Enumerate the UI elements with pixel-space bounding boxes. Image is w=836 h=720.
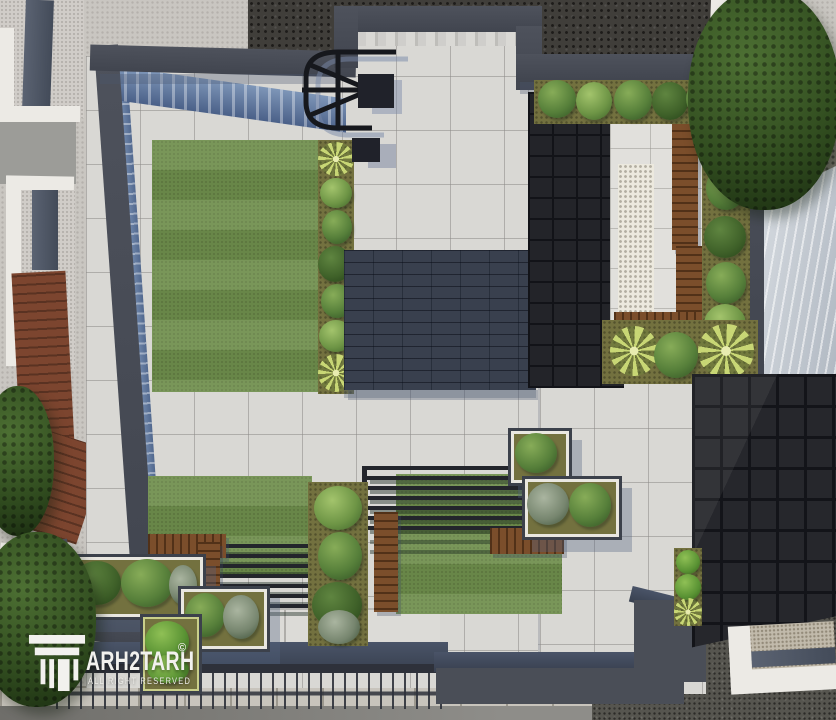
tree-canopy: [688, 0, 836, 210]
shrub: [314, 486, 362, 530]
stair-railing: [300, 46, 410, 146]
site-plan-render: ARH2TARH © ALL RIGHT RESERVED: [0, 0, 836, 720]
walkway-planting-pocket: [674, 548, 702, 626]
palm-plant: [318, 142, 354, 176]
pebble-strip: [618, 164, 654, 318]
neighbor-roof-inset: [32, 190, 58, 270]
palm-plant: [674, 598, 702, 626]
neighbor-building-bottom-right: [723, 613, 836, 720]
shrub: [576, 82, 612, 120]
roof-shadow: [348, 390, 538, 400]
shrub: [676, 550, 700, 574]
terrace-wall-top: [334, 6, 542, 32]
shrub: [704, 216, 746, 258]
shrub: [121, 559, 173, 607]
watermark-tagline: ALL RIGHT RESERVED: [88, 676, 191, 687]
shrub: [675, 574, 701, 600]
neighbor-parapet: [730, 665, 836, 695]
stair-railing-icon: [300, 46, 410, 146]
palm-plant: [610, 326, 658, 376]
shrub: [569, 483, 611, 527]
shrub: [320, 178, 352, 208]
shrub: [515, 433, 557, 473]
planting-strip-middle: [308, 482, 368, 646]
neighbor-parapet: [0, 106, 80, 122]
shrub: [652, 82, 688, 120]
shrub: [322, 210, 352, 244]
watermark: ARH2TARH © ALL RIGHT RESERVED: [28, 630, 468, 700]
neighbor-roof-inset: [22, 0, 54, 110]
shrub: [614, 80, 652, 120]
watermark-copyright: ©: [178, 642, 186, 654]
shrub: [654, 332, 698, 378]
l-shaped-planter-center: [522, 476, 622, 540]
shrub: [527, 483, 569, 525]
shrub: [706, 262, 746, 304]
wooden-bench: [374, 512, 398, 612]
central-shingle-roof: [344, 250, 536, 390]
column-logo-icon: [28, 634, 86, 692]
terrace-seat: [352, 138, 380, 162]
shrub: [318, 532, 362, 580]
shrub: [538, 80, 576, 118]
palm-plant: [698, 324, 754, 378]
main-lawn: [152, 140, 318, 392]
